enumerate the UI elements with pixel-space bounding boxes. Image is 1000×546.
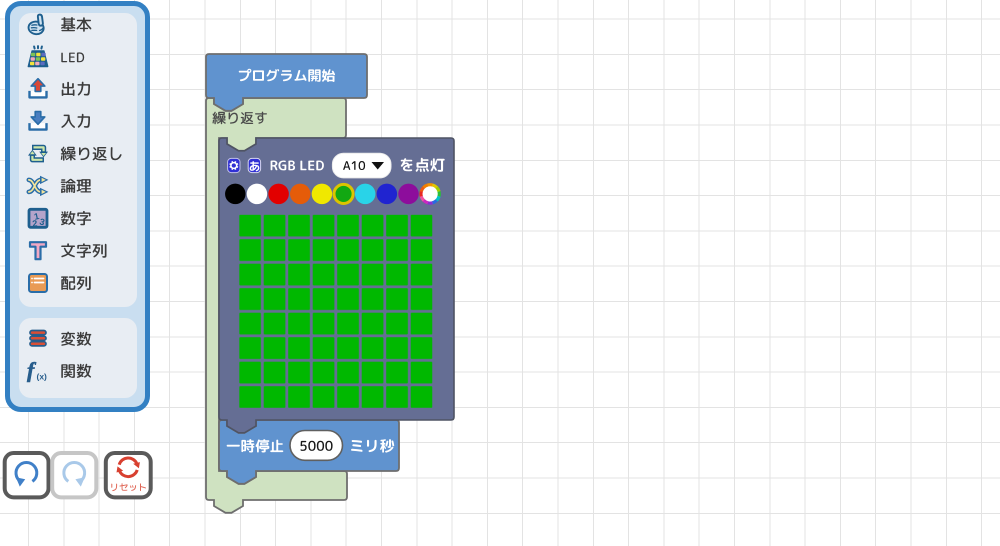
svg-text:(x): (x) <box>37 372 48 382</box>
svg-text:f: f <box>27 358 37 383</box>
svg-text:2: 2 <box>32 218 38 228</box>
